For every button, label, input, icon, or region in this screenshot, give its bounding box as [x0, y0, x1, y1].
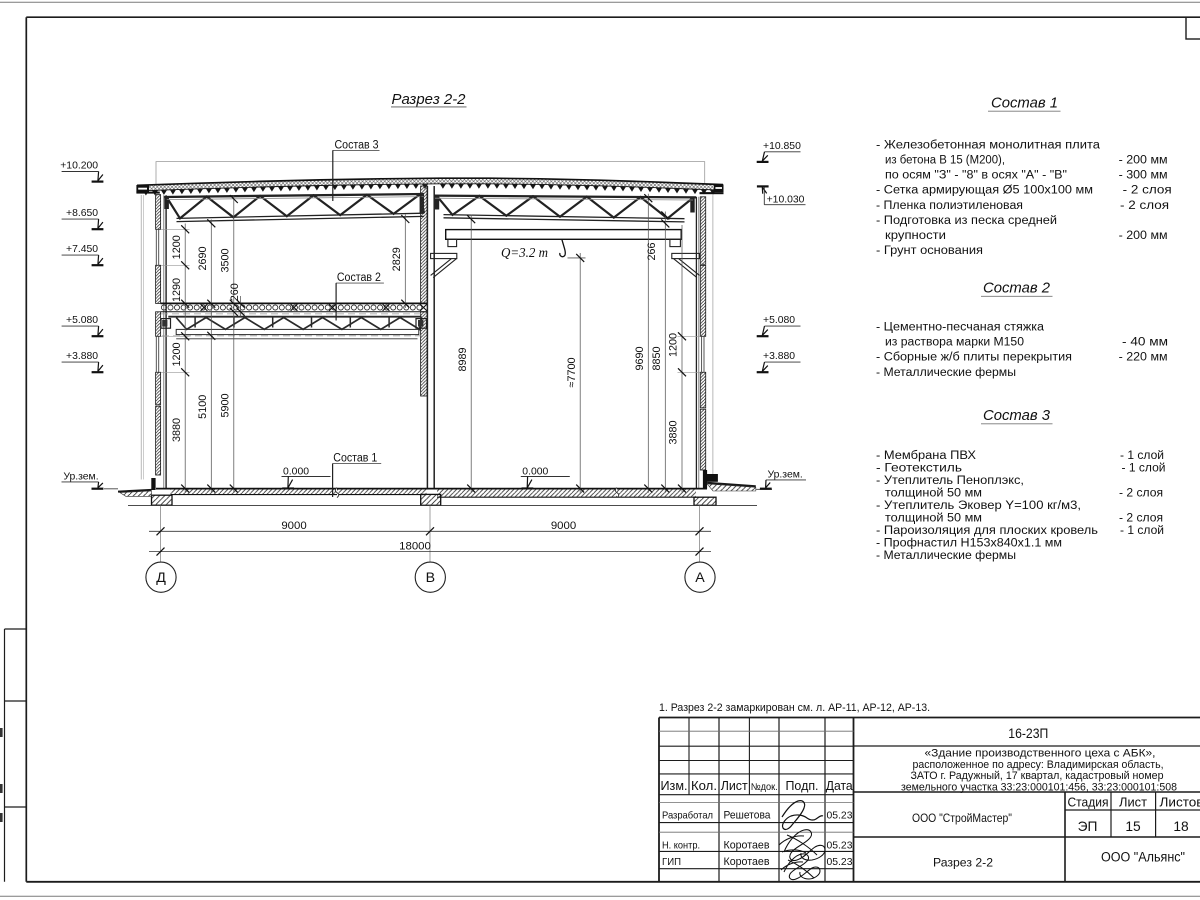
svg-text:8989: 8989 — [457, 347, 469, 371]
svg-text:Лист: Лист — [1119, 794, 1147, 809]
svg-text:≈7700: ≈7700 — [566, 358, 578, 388]
svg-text:1200: 1200 — [171, 235, 183, 259]
svg-text:+10.850: +10.850 — [763, 141, 801, 152]
svg-text:+10.200: +10.200 — [60, 161, 98, 172]
svg-text:9000: 9000 — [551, 520, 576, 532]
svg-text:расположенное по адресу: Влади: расположенное по адресу: Владимирская об… — [913, 759, 1164, 771]
svg-text:Ур.зем.: Ур.зем. — [768, 470, 803, 481]
svg-text:- 40 мм: - 40 мм — [1122, 337, 1168, 349]
svg-text:9690: 9690 — [634, 346, 646, 370]
svg-text:- 2 слоя: - 2 слоя — [1120, 200, 1169, 212]
svg-text:Решетова: Решетова — [724, 810, 771, 822]
svg-text:- Металлические фермы: - Металлические фермы — [876, 550, 1016, 562]
svg-text:толщиной 50 мм: толщиной 50 мм — [885, 512, 982, 524]
svg-text:+10.030: +10.030 — [767, 195, 805, 206]
svg-text:из раствора марки М150: из раствора марки М150 — [885, 337, 1024, 349]
svg-text:ЭП: ЭП — [1078, 819, 1098, 834]
svg-text:Подп.: Подп. — [786, 779, 819, 793]
svg-text:ООО "СтройМастер": ООО "СтройМастер" — [912, 811, 1012, 825]
svg-text:05.23: 05.23 — [826, 841, 852, 852]
svg-text:Q=3.2 т: Q=3.2 т — [501, 246, 548, 261]
svg-text:- Утеплитель Эковер Y=100 кг/м: - Утеплитель Эковер Y=100 кг/м3, — [876, 500, 1081, 512]
svg-text:- 220 мм: - 220 мм — [1119, 352, 1168, 364]
svg-text:Коротаев: Коротаев — [724, 840, 770, 852]
svg-text:Состав 2: Состав 2 — [337, 272, 381, 284]
svg-text:3880: 3880 — [171, 418, 183, 442]
svg-text:9000: 9000 — [281, 520, 306, 532]
svg-text:1200: 1200 — [171, 342, 183, 366]
svg-text:18: 18 — [1173, 819, 1189, 834]
svg-text:+7.450: +7.450 — [66, 244, 98, 255]
svg-text:266: 266 — [646, 242, 658, 260]
svg-text:Дата: Дата — [826, 779, 853, 793]
svg-text:толщиной 50 мм: толщиной 50 мм — [885, 487, 982, 499]
svg-text:- 200 мм: - 200 мм — [1119, 230, 1168, 242]
svg-text:Кол.: Кол. — [691, 779, 717, 793]
svg-text:- 200 мм: - 200 мм — [1119, 155, 1168, 167]
svg-text:Разрез 2-2: Разрез 2-2 — [392, 92, 467, 108]
svg-text:земельного участка 33:23:00010: земельного участка 33:23:000101:456, 33:… — [901, 782, 1177, 794]
svg-text:Коротаев: Коротаев — [724, 856, 770, 868]
svg-text:- 2 слоя: - 2 слоя — [1119, 512, 1163, 524]
svg-text:16-23П: 16-23П — [1008, 726, 1048, 741]
svg-text:260: 260 — [229, 283, 241, 301]
svg-text:2829: 2829 — [391, 247, 403, 271]
svg-text:Н. контр.: Н. контр. — [662, 841, 700, 852]
svg-text:крупности: крупности — [885, 230, 946, 242]
svg-text:- Грунт основания: - Грунт основания — [876, 245, 983, 257]
svg-text:- Пленка полиэтиленовая: - Пленка полиэтиленовая — [876, 200, 1023, 212]
svg-text:ЗАТО г. Радужный, 17 квартал,: ЗАТО г. Радужный, 17 квартал, кадастровы… — [911, 770, 1164, 782]
svg-text:Состав 3: Состав 3 — [335, 139, 379, 151]
svg-text:по осям "З" - "8" в осях "А" -: по осям "З" - "8" в осях "А" - "В" — [885, 170, 1067, 182]
svg-text:8850: 8850 — [651, 346, 663, 370]
svg-text:Состав 1: Состав 1 — [991, 96, 1058, 112]
svg-text:- Подготовка из песка средней: - Подготовка из песка средней — [876, 215, 1057, 227]
svg-text:+5.080: +5.080 — [66, 315, 98, 326]
svg-text:- 1 слой: - 1 слой — [1120, 525, 1164, 537]
svg-text:5900: 5900 — [220, 393, 232, 417]
svg-text:3500: 3500 — [220, 248, 232, 272]
svg-text:ООО "Альянс": ООО "Альянс" — [1101, 850, 1185, 866]
svg-text:Изм.: Изм. — [661, 779, 688, 793]
svg-text:Состав 3: Состав 3 — [983, 408, 1050, 424]
svg-text:2690: 2690 — [197, 246, 209, 270]
svg-text:3880: 3880 — [668, 420, 680, 444]
svg-text:«Здание производственного цеха: «Здание производственного цеха с АБК», — [925, 748, 1156, 760]
svg-text:Стадия: Стадия — [1068, 794, 1109, 809]
svg-text:Состав 2: Состав 2 — [983, 281, 1050, 297]
svg-text:+3.880: +3.880 — [66, 351, 98, 362]
svg-text:- 2 слоя: - 2 слоя — [1119, 487, 1163, 499]
svg-text:0.000: 0.000 — [522, 466, 548, 477]
svg-text:Листов: Листов — [1160, 794, 1200, 809]
svg-text:Лист: Лист — [721, 779, 748, 793]
svg-text:Состав 1: Состав 1 — [333, 453, 377, 465]
svg-text:- Пароизоляция для плоских кро: - Пароизоляция для плоских кровель — [876, 525, 1098, 537]
svg-text:+3.880: +3.880 — [763, 351, 795, 362]
svg-text:05.23: 05.23 — [826, 857, 852, 868]
svg-text:1290: 1290 — [171, 278, 183, 302]
svg-text:из бетона В 15 (М200),: из бетона В 15 (М200), — [885, 155, 1005, 167]
svg-text:В: В — [426, 570, 435, 586]
svg-text:ГИП: ГИП — [662, 857, 681, 868]
svg-text:- Цементно-песчаная стяжка: - Цементно-песчаная стяжка — [876, 322, 1045, 334]
svg-text:А: А — [695, 570, 705, 586]
svg-text:- Сетка армирующая Ø5 100х100: - Сетка армирующая Ø5 100х100 мм — [876, 185, 1093, 197]
svg-text:- Мембрана ПВХ: - Мембрана ПВХ — [876, 450, 976, 462]
svg-text:Д: Д — [156, 570, 166, 586]
svg-text:Разработал: Разработал — [662, 810, 713, 822]
svg-text:- 1 слой: - 1 слой — [1120, 450, 1164, 462]
svg-text:18000: 18000 — [399, 541, 431, 553]
svg-text:- 2 слоя: - 2 слоя — [1123, 185, 1172, 197]
svg-text:0.000: 0.000 — [283, 466, 309, 477]
svg-text:- Сборные ж/б плиты перекрытия: - Сборные ж/б плиты перекрытия — [876, 352, 1072, 364]
svg-text:- Металлические фермы: - Металлические фермы — [876, 367, 1016, 379]
svg-text:Ур.зем.: Ур.зем. — [63, 472, 98, 483]
svg-text:1. Разрез 2-2 замаркирован см.: 1. Разрез 2-2 замаркирован см. л. АР-11,… — [659, 702, 930, 714]
svg-text:Разрез 2-2: Разрез 2-2 — [933, 855, 993, 869]
svg-text:- 1 слой: - 1 слой — [1122, 462, 1166, 474]
svg-text:- Геотекстиль: - Геотекстиль — [876, 462, 962, 474]
svg-text:- Утеплитель Пеноплэкс,: - Утеплитель Пеноплэкс, — [876, 475, 1024, 487]
svg-text:№док.: №док. — [751, 782, 778, 793]
svg-text:- Профнастил Н153х840х1.1 мм: - Профнастил Н153х840х1.1 мм — [876, 537, 1062, 549]
svg-text:- Железобетонная монолитная п: - Железобетонная монолитная плита — [876, 139, 1101, 151]
svg-text:+8.650: +8.650 — [66, 208, 98, 219]
svg-text:+5.080: +5.080 — [763, 315, 795, 326]
svg-text:05.23: 05.23 — [826, 811, 852, 822]
svg-text:5100: 5100 — [197, 395, 209, 419]
svg-text:- 300 мм: - 300 мм — [1119, 170, 1168, 182]
svg-text:15: 15 — [1125, 819, 1141, 834]
svg-text:1200: 1200 — [668, 333, 680, 357]
